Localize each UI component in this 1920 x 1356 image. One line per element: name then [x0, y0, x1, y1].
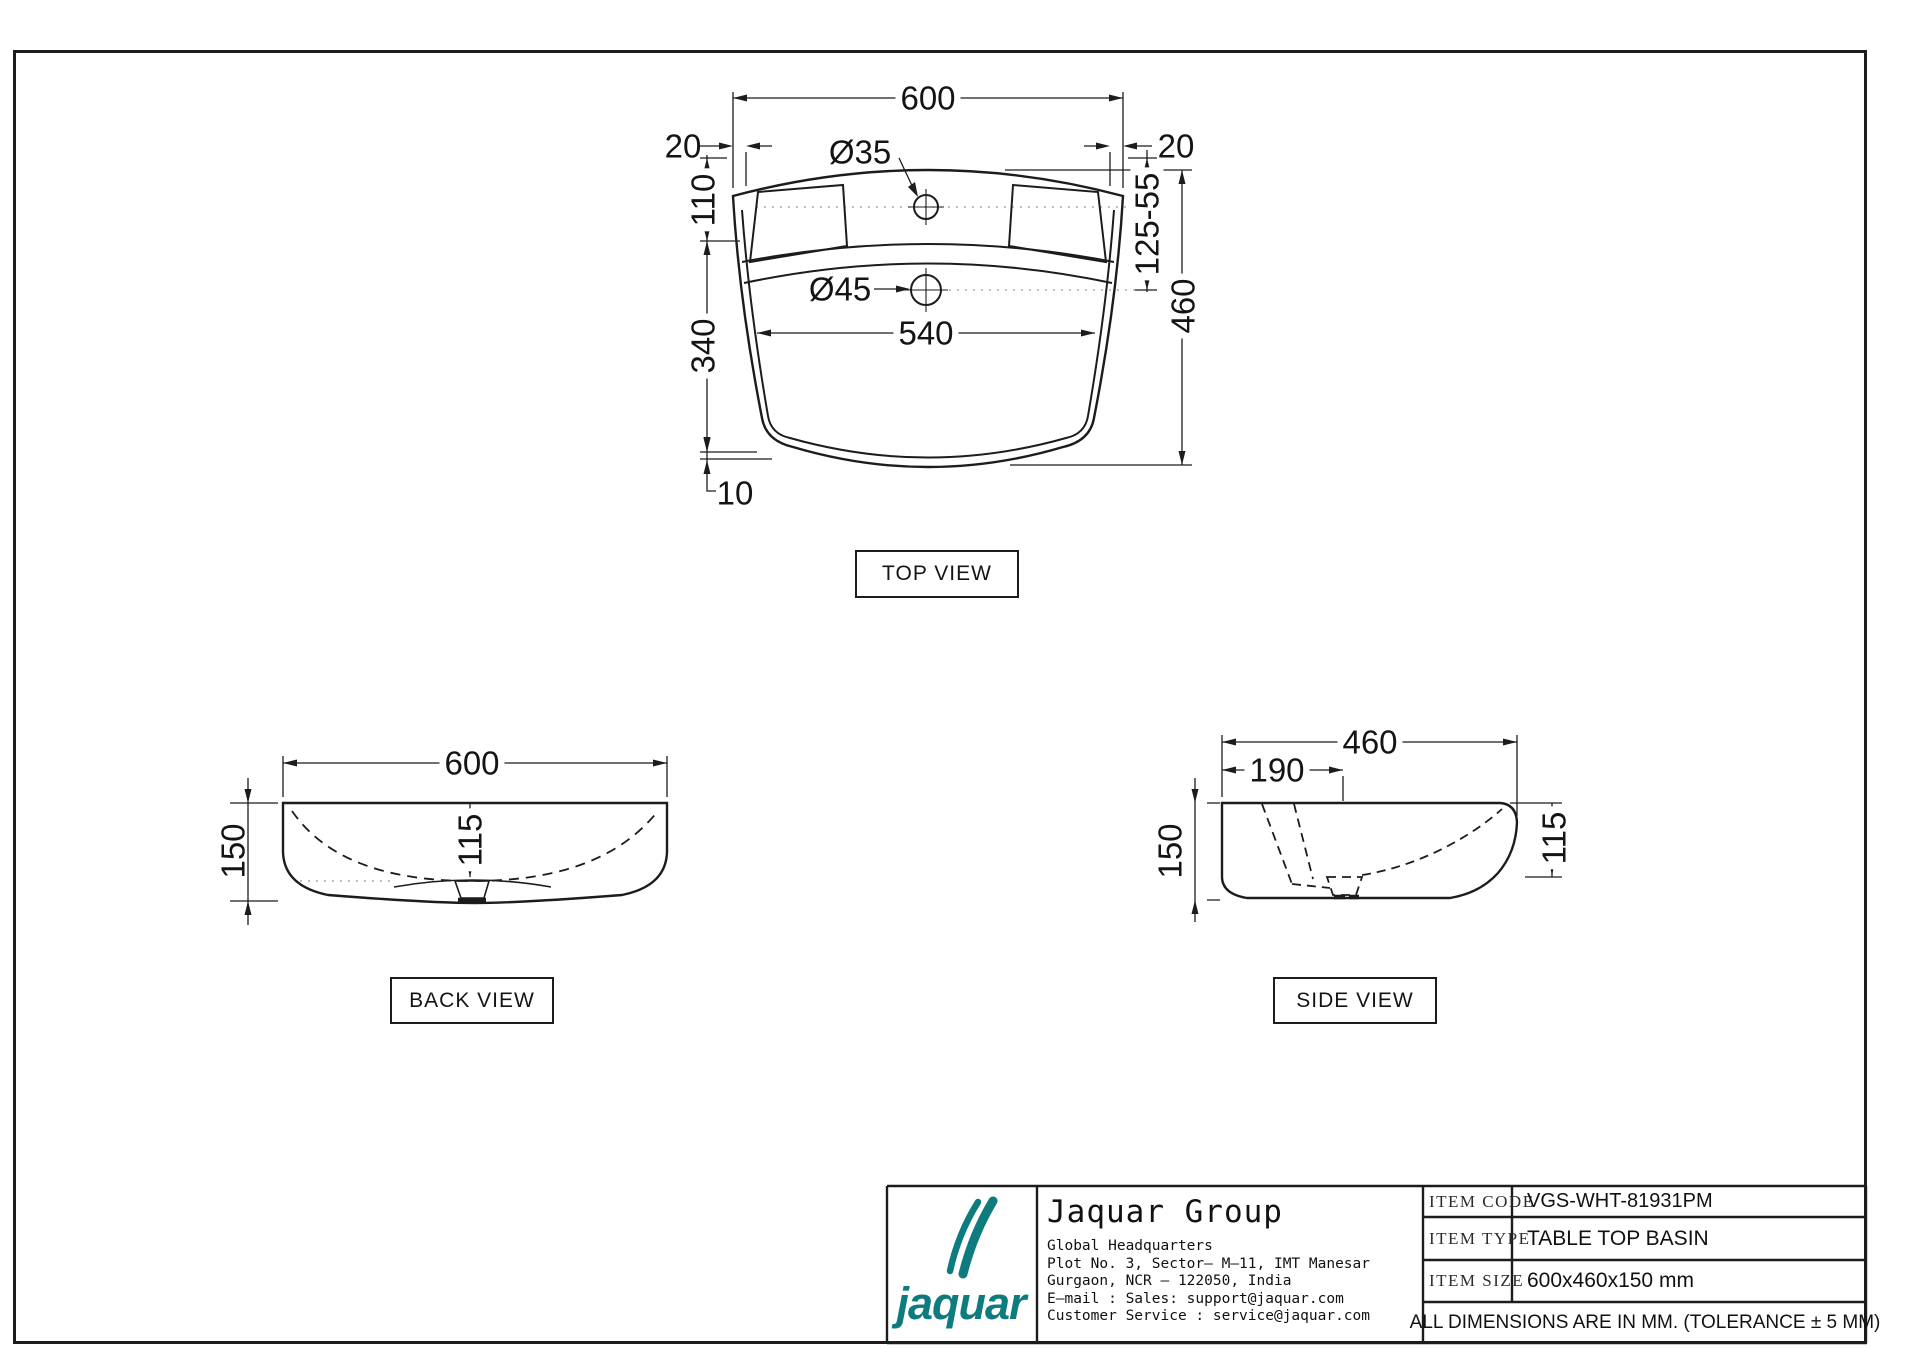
dim-top-overall-width: 600 [895, 82, 960, 115]
side-view-label: SIDE VIEW [1296, 989, 1414, 1013]
address-line: E–mail : Sales: support@jaquar.com [1047, 1291, 1370, 1309]
address-line: Plot No. 3, Sector– M–11, IMT Manesar [1047, 1256, 1370, 1274]
tolerance-note: ALL DIMENSIONS ARE IN MM. (TOLERANCE ± 5… [1423, 1302, 1867, 1343]
item-code-value: VGS-WHT-81931PM [1527, 1186, 1713, 1217]
dim-top-offset-left: 20 [665, 130, 702, 163]
dim-top-deck-depth: 110 [687, 169, 720, 232]
dim-back-height: 150 [217, 823, 250, 878]
dim-top-wall-thickness: 10 [717, 477, 754, 510]
cad-linework [0, 0, 1920, 1356]
jaquar-swoosh-icon [950, 1201, 993, 1274]
dim-side-height: 150 [1154, 823, 1187, 878]
dim-top-drain-hole: Ø45 [809, 273, 871, 306]
item-size-label: ITEM SIZE [1429, 1260, 1524, 1302]
top-view-arrowheads [704, 95, 1186, 475]
company-address: Global Headquarters Plot No. 3, Sector– … [1047, 1238, 1370, 1326]
top-view-dimension-lines [700, 92, 1192, 491]
dim-back-bowl-depth: 115 [454, 809, 487, 872]
jaquar-logo-wordmark: jaquar [896, 1278, 1025, 1330]
side-view-label-box: SIDE VIEW [1273, 977, 1437, 1024]
dim-top-bowl-length: 340 [687, 313, 720, 378]
dim-back-width: 600 [439, 747, 504, 780]
dim-side-depth: 460 [1337, 726, 1402, 759]
item-code-label: ITEM CODE [1429, 1186, 1535, 1217]
back-view-label-box: BACK VIEW [390, 977, 554, 1024]
address-line: Global Headquarters [1047, 1238, 1370, 1256]
dim-top-hole-offsets: 125-55 [1131, 168, 1164, 281]
top-view-label-box: TOP VIEW [855, 550, 1019, 598]
item-type-label: ITEM TYPE [1429, 1217, 1531, 1260]
back-view-label: BACK VIEW [409, 989, 535, 1013]
dim-side-bowl-depth: 115 [1538, 807, 1571, 870]
dim-top-offset-right: 20 [1158, 130, 1195, 163]
side-view-outline [1222, 803, 1517, 898]
company-name: Jaquar Group [1047, 1194, 1283, 1230]
dim-side-deck-offset: 190 [1244, 754, 1309, 787]
item-size-value: 600x460x150 mm [1527, 1260, 1694, 1302]
dim-top-inner-width: 540 [893, 317, 958, 350]
top-view-label: TOP VIEW [882, 562, 992, 586]
address-line: Gurgaon, NCR – 122050, India [1047, 1273, 1370, 1291]
dim-top-overall-depth: 460 [1167, 273, 1200, 338]
drawing-sheet: 600 20 20 Ø35 Ø45 110 340 10 125-55 460 … [0, 0, 1920, 1356]
address-line: Customer Service : service@jaquar.com [1047, 1308, 1370, 1326]
item-type-value: TABLE TOP BASIN [1527, 1217, 1709, 1260]
dim-top-faucet-hole: Ø35 [829, 136, 891, 169]
